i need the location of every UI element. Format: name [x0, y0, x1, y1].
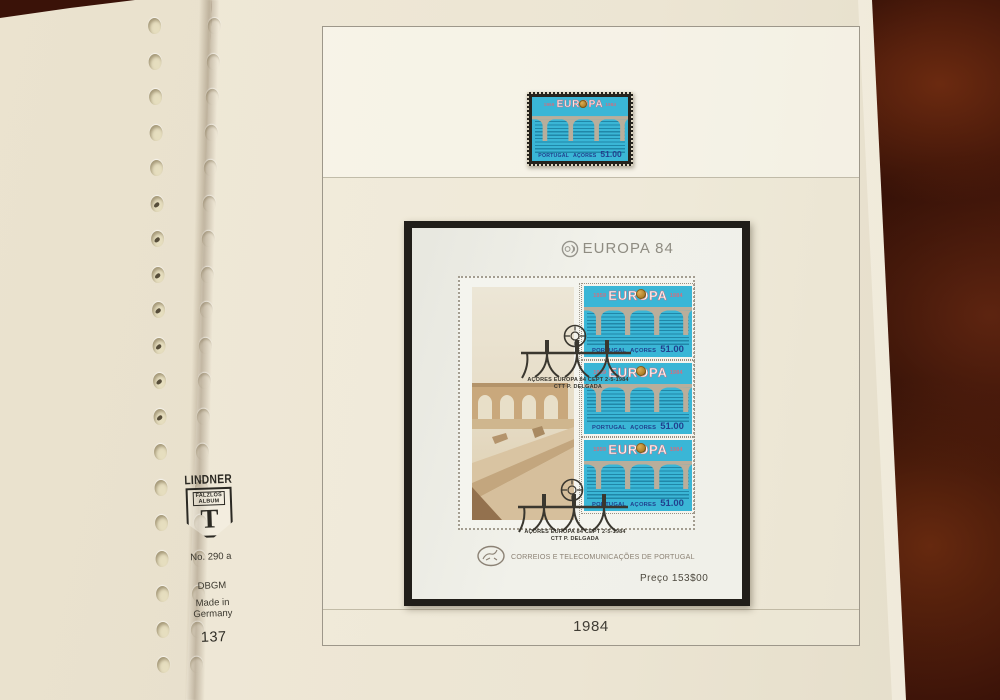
face-value: 51.00 — [660, 498, 684, 509]
year-left: 1959 — [593, 447, 606, 453]
binder-hole — [154, 479, 167, 495]
binder-hole — [157, 657, 170, 673]
binder-hole — [150, 195, 163, 211]
bridge-graphic — [532, 110, 628, 148]
binder-hole — [148, 53, 161, 69]
binder-hole — [202, 231, 215, 247]
sheet-header: EUROPA 84 — [561, 240, 673, 258]
cept-gold-emblem-icon — [636, 289, 646, 299]
ref-number: No. 290 a — [170, 550, 252, 564]
face-value: 51.00 — [660, 421, 684, 432]
shield-letter: T — [200, 505, 219, 532]
made-in-line2: Germany — [172, 607, 254, 621]
cept-gold-emblem-icon — [636, 366, 646, 376]
binder-hole — [150, 160, 163, 176]
region-label: AÇORES — [573, 153, 596, 159]
year-right: 1984 — [605, 102, 616, 107]
operator-name: CORREIOS E TELECOMUNICAÇÕES DE PORTUGAL — [511, 552, 695, 561]
country-label: PORTUGAL — [592, 425, 626, 431]
sheet-title: EUROPA 84 — [583, 241, 674, 257]
year-left: 1959 — [544, 102, 555, 107]
binder-hole — [153, 373, 166, 389]
binder-hole — [155, 550, 168, 566]
binder-hole — [205, 124, 218, 140]
binder-hole — [156, 586, 169, 602]
binder-hole — [203, 195, 216, 211]
operator-row: CORREIOS E TELECOMUNICAÇÕES DE PORTUGAL — [476, 545, 704, 567]
lindner-imprint: LINDNER FALZLOS ALBUM T No. 290 a DBGM M… — [167, 471, 256, 674]
region-label: AÇORES — [630, 502, 656, 508]
binder-hole — [200, 302, 213, 318]
cept-logo-icon — [561, 240, 579, 258]
binder-hole — [149, 124, 162, 140]
binder-hole — [198, 373, 211, 389]
binder-hole — [199, 337, 212, 353]
cept-gold-emblem-icon — [579, 100, 587, 108]
single-stamp-design: 1959 EUROPA 1984 PORTUGAL AÇORES 51.00 — [532, 97, 628, 161]
page-number: 137 — [172, 628, 255, 647]
region-label: AÇORES — [630, 425, 656, 431]
postmark-line2: CTT P. DELGADA — [516, 384, 640, 391]
face-value: 51.00 — [660, 344, 684, 355]
postmark-text: AÇORES EUROPA 84 CEPT 2-5-1984 CTT P. DE… — [516, 377, 640, 391]
binder-hole — [154, 444, 167, 460]
binder-hole — [201, 266, 214, 282]
postmark-text: AÇORES EUROPA 84 CEPT 2-5-1984 CTT P. DE… — [513, 529, 637, 543]
souvenir-sheet: EUROPA 84 — [412, 228, 742, 599]
single-stamp: 1959 EUROPA 1984 PORTUGAL AÇORES 51.00 — [527, 92, 633, 166]
dbgm-label: DBGM — [171, 579, 253, 593]
binder-hole — [151, 231, 164, 247]
year-right: 1984 — [670, 293, 683, 299]
brand-logo-text: LINDNER — [174, 471, 242, 487]
lindner-shield-logo: FALZLOS ALBUM T — [186, 487, 234, 539]
binder-hole — [206, 89, 219, 105]
binder-hole — [152, 302, 165, 318]
binder-hole — [155, 515, 168, 531]
binder-hole — [153, 408, 166, 424]
year-right: 1984 — [670, 447, 683, 453]
binder-hole — [196, 444, 209, 460]
year-left: 1959 — [593, 293, 606, 299]
binder-hole — [208, 18, 221, 34]
stamp-footer: PORTUGAL AÇORES 51.00 — [532, 149, 628, 159]
binder-hole — [149, 89, 162, 105]
postmark-line1: AÇORES EUROPA 84 CEPT 2-5-1984 — [516, 377, 640, 384]
year-right: 1984 — [670, 370, 683, 376]
postmark-line2: CTT P. DELGADA — [513, 536, 637, 543]
postmark-line1: AÇORES EUROPA 84 CEPT 2-5-1984 — [513, 529, 637, 536]
country-label: PORTUGAL — [538, 153, 569, 159]
stamp-footer: PORTUGAL AÇORES 51.00 — [584, 421, 692, 432]
sheet-price: Preço 153$00 — [640, 573, 708, 584]
cept-gold-emblem-icon — [636, 443, 646, 453]
year-label: 1984 — [323, 618, 859, 635]
binder-hole — [197, 408, 210, 424]
binder-hole — [151, 266, 164, 282]
binder-hole — [152, 337, 165, 353]
souvenir-sheet-mount: EUROPA 84 — [404, 221, 750, 606]
binder-hole — [207, 53, 220, 69]
binder-hole — [156, 621, 169, 637]
binder-hole — [148, 18, 161, 34]
face-value: 51.00 — [600, 149, 621, 159]
ctt-postrider-icon — [476, 545, 506, 567]
binder-hole — [204, 160, 217, 176]
